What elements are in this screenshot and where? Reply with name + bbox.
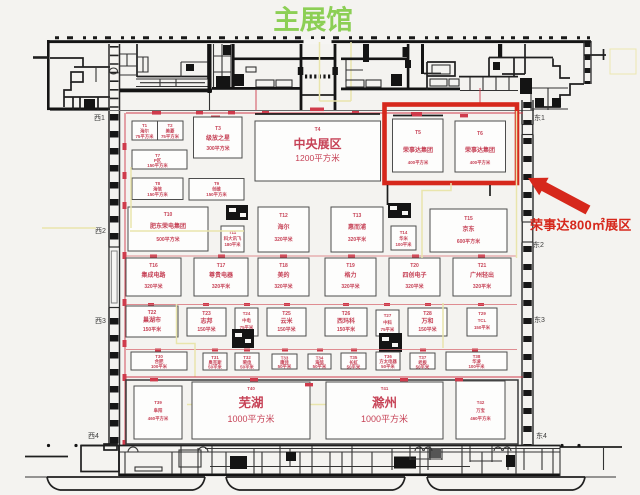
svg-text:150平米: 150平米	[474, 324, 491, 331]
svg-text:400平方米: 400平方米	[470, 159, 491, 166]
svg-text:东3: 东3	[534, 315, 545, 324]
svg-text:东2: 东2	[533, 240, 544, 249]
svg-text:50平米: 50平米	[347, 364, 361, 371]
svg-text:T12: T12	[279, 213, 288, 219]
svg-text:TCL: TCL	[478, 318, 487, 323]
svg-text:京东: 京东	[462, 225, 474, 233]
svg-text:科大讯飞: 科大讯飞	[224, 235, 242, 242]
svg-text:600平方米: 600平方米	[457, 238, 481, 245]
svg-text:1000平方米: 1000平方米	[227, 413, 274, 424]
svg-text:180平米: 180平米	[224, 241, 241, 248]
svg-text:50平米: 50平米	[416, 364, 430, 371]
svg-text:75平米: 75平米	[381, 326, 395, 333]
svg-text:320平米: 320平米	[473, 283, 492, 290]
svg-text:T15: T15	[464, 216, 473, 222]
svg-text:中央展区: 中央展区	[293, 136, 341, 151]
svg-text:T26: T26	[342, 311, 351, 317]
svg-text:主展馆: 主展馆	[273, 5, 353, 35]
svg-text:T25: T25	[282, 311, 291, 317]
svg-text:300平方米: 300平方米	[206, 145, 230, 152]
svg-text:50平米: 50平米	[208, 364, 222, 371]
svg-text:荣事达集团: 荣事达集团	[402, 146, 433, 154]
svg-text:西2: 西2	[95, 227, 106, 235]
svg-text:T41: T41	[381, 386, 389, 391]
svg-text:320平米: 320平米	[274, 283, 293, 290]
svg-text:T29: T29	[478, 311, 486, 316]
svg-text:T6: T6	[477, 131, 483, 137]
svg-text:T14: T14	[400, 230, 408, 235]
svg-text:T3: T3	[215, 126, 221, 132]
svg-text:T28: T28	[423, 311, 432, 317]
svg-text:T22: T22	[148, 310, 157, 316]
svg-text:T27: T27	[384, 313, 392, 318]
svg-text:肥东荣电集团: 肥东荣电集团	[150, 222, 186, 230]
svg-text:100平米: 100平米	[468, 363, 485, 370]
svg-text:华米: 华米	[399, 235, 408, 242]
svg-text:150平米: 150平米	[143, 326, 162, 333]
svg-text:中电: 中电	[242, 317, 251, 324]
svg-text:广州轻出: 广州轻出	[470, 271, 494, 279]
svg-text:T21: T21	[478, 263, 487, 269]
svg-text:T18: T18	[279, 263, 288, 269]
svg-text:T17: T17	[217, 263, 226, 269]
svg-text:100平米: 100平米	[151, 363, 168, 370]
svg-text:T23: T23	[202, 311, 211, 317]
svg-text:荣事达800㎡展区: 荣事达800㎡展区	[529, 218, 632, 233]
svg-text:西1: 西1	[94, 114, 105, 122]
svg-text:320平米: 320平米	[348, 236, 367, 243]
svg-text:T24: T24	[243, 311, 251, 316]
svg-text:T16: T16	[149, 263, 158, 269]
svg-text:320平米: 320平米	[144, 283, 163, 290]
svg-text:150平米: 150平米	[277, 326, 296, 333]
svg-text:巢湖市: 巢湖市	[142, 316, 161, 324]
svg-text:320平米: 320平米	[405, 283, 424, 290]
svg-text:500平方米: 500平方米	[156, 236, 180, 243]
svg-text:75平方米: 75平方米	[161, 133, 180, 140]
svg-text:460平方米: 460平方米	[148, 415, 169, 422]
svg-text:320平米: 320平米	[274, 236, 293, 243]
svg-text:50平米: 50平米	[381, 363, 395, 370]
svg-text:T2: T2	[167, 123, 173, 128]
svg-text:T19: T19	[346, 263, 355, 269]
svg-text:T5: T5	[415, 130, 421, 136]
svg-text:T40: T40	[247, 386, 255, 391]
svg-text:T20: T20	[410, 263, 419, 269]
svg-text:150平方米: 150平方米	[206, 191, 227, 198]
svg-text:西4: 西4	[88, 432, 99, 440]
svg-text:460平方米: 460平方米	[470, 415, 491, 422]
svg-text:T1: T1	[142, 123, 148, 128]
svg-text:四创电子: 四创电子	[402, 271, 426, 279]
svg-text:惠而浦: 惠而浦	[348, 223, 366, 231]
svg-text:150平米: 150平米	[337, 326, 356, 333]
svg-text:T9: T9	[214, 181, 220, 186]
svg-text:西玛科: 西玛科	[337, 317, 355, 325]
svg-text:100平米: 100平米	[395, 241, 412, 248]
svg-text:T39: T39	[154, 400, 162, 405]
svg-text:50平米: 50平米	[278, 363, 292, 370]
svg-text:T4: T4	[315, 127, 321, 133]
svg-text:75平方米: 75平方米	[135, 133, 154, 140]
svg-text:400平方米: 400平方米	[408, 159, 429, 166]
svg-text:芜湖: 芜湖	[238, 395, 263, 410]
svg-text:T13: T13	[353, 213, 362, 219]
svg-text:东1: 东1	[534, 113, 545, 122]
svg-text:150平方米: 150平方米	[147, 162, 168, 169]
svg-text:志邦: 志邦	[200, 317, 212, 325]
svg-text:1200平方米: 1200平方米	[295, 153, 340, 163]
svg-text:T42: T42	[477, 400, 485, 405]
svg-text:万宝: 万宝	[475, 407, 485, 414]
svg-text:T10: T10	[164, 212, 173, 218]
svg-text:阜阳: 阜阳	[154, 407, 163, 414]
svg-text:320平米: 320平米	[212, 283, 231, 290]
svg-text:级放之星: 级放之星	[205, 134, 230, 142]
svg-text:50平米: 50平米	[240, 364, 254, 371]
svg-text:海尔: 海尔	[277, 223, 289, 231]
svg-text:西3: 西3	[95, 317, 106, 325]
svg-text:滁州: 滁州	[372, 395, 397, 410]
svg-text:150平米: 150平米	[197, 326, 216, 333]
svg-text:美的: 美的	[276, 271, 289, 279]
svg-text:东4: 东4	[536, 431, 547, 440]
svg-text:格力: 格力	[344, 271, 356, 279]
svg-text:荣事达集团: 荣事达集团	[464, 146, 495, 154]
svg-text:中科: 中科	[383, 319, 392, 326]
svg-text:云米: 云米	[280, 317, 292, 325]
svg-text:150平方米: 150平方米	[147, 191, 168, 198]
svg-text:尊贵电器: 尊贵电器	[209, 271, 234, 279]
svg-text:集成电路: 集成电路	[140, 271, 166, 279]
svg-text:1000平方米: 1000平方米	[361, 413, 408, 424]
svg-text:150平米: 150平米	[418, 326, 437, 333]
svg-text:320平米: 320平米	[341, 283, 360, 290]
svg-text:50平米: 50平米	[313, 363, 327, 370]
svg-text:T8: T8	[155, 181, 161, 186]
svg-text:万和: 万和	[420, 317, 433, 325]
